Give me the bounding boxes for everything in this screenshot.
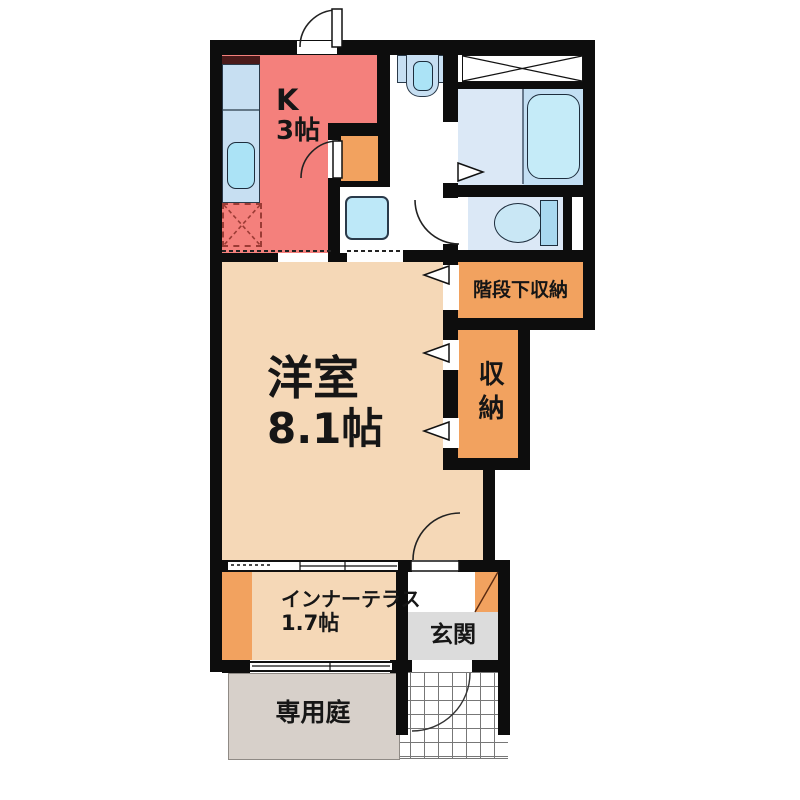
shoe-step [475, 572, 498, 612]
wall [483, 463, 495, 572]
wall [445, 318, 595, 330]
wall [390, 660, 408, 673]
wall [518, 330, 530, 470]
wall [563, 197, 572, 250]
private-garden-label: 専用庭 [228, 699, 398, 728]
storage-label: 収納 [458, 330, 518, 458]
toilet-tank [540, 200, 558, 246]
refrigerator-space [222, 203, 262, 247]
garden-window [250, 661, 392, 672]
wall [443, 55, 458, 470]
inner-terrace-label: インナーテラス 1.7帖 [281, 588, 421, 635]
wall [328, 187, 340, 262]
door-opening [328, 140, 338, 178]
entrance-label: 玄関 [408, 622, 498, 648]
wall [377, 55, 390, 123]
wall [222, 660, 250, 673]
door-opening [412, 661, 472, 672]
door-opening [297, 41, 337, 54]
western-room-label-line1: 洋室 [267, 352, 383, 405]
under-stairs-storage-label: 階段下収納 [458, 280, 583, 302]
door-opening [443, 265, 459, 310]
washing-machine-space [345, 196, 389, 240]
wall [210, 40, 595, 55]
kitchen-sink [227, 142, 255, 189]
toilet-bowl [494, 203, 542, 243]
tile-porch [396, 672, 508, 759]
door-opening [443, 340, 459, 370]
floor-plan: K 3帖 洋室 8.1帖 階段下収納 収納 インナーテラス 1.7帖 玄関 専用… [0, 0, 800, 800]
inner-terrace-label-line2: 1.7帖 [281, 611, 421, 635]
terrace-window [228, 560, 398, 572]
bathtub [527, 94, 580, 179]
wall [328, 253, 347, 262]
western-room-label-line2: 8.1帖 [267, 405, 383, 453]
door-opening [443, 198, 458, 244]
wall [222, 253, 278, 262]
wall [210, 40, 222, 672]
storage-niche [341, 136, 378, 181]
western-room-floor [443, 470, 483, 560]
western-room-label: 洋室 8.1帖 [267, 352, 383, 453]
range-hood [222, 56, 260, 64]
door-opening [443, 418, 459, 448]
kitchen-label-line2: 3帖 [276, 117, 320, 147]
wall [445, 250, 595, 262]
bathroom-floor [457, 88, 523, 185]
wall [498, 560, 510, 735]
bathroom-window-cross-box [462, 55, 583, 82]
kitchen-label: K 3帖 [276, 84, 320, 147]
hall-door-leaf [411, 561, 459, 571]
wall [458, 82, 586, 89]
door-opening [443, 122, 458, 183]
wall [445, 185, 595, 197]
wash-basin-bowl [413, 61, 433, 91]
inner-terrace-label-line1: インナーテラス [281, 588, 421, 611]
inner-terrace-counter [222, 572, 252, 660]
wall [472, 660, 510, 672]
kitchen-label-line1: K [276, 84, 320, 117]
